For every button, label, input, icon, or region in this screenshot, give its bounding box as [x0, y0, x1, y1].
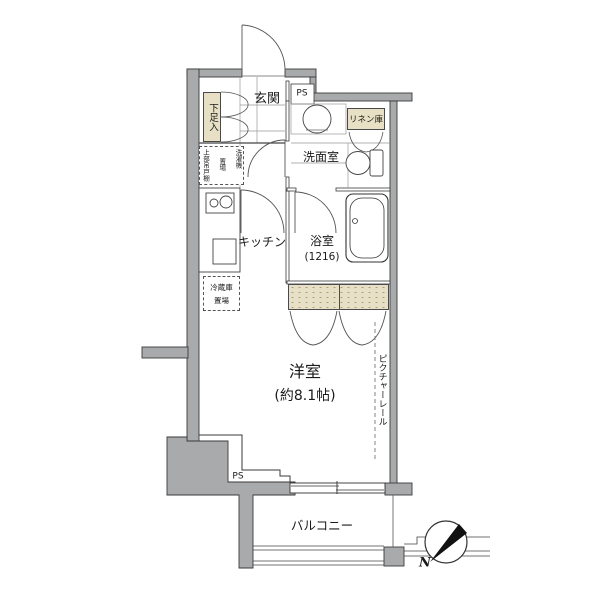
washer-space-label-2: 置場 [218, 149, 225, 182]
washer-space-label-1: 洗濯機 [235, 149, 242, 182]
washbasin [303, 105, 331, 133]
wall-left [187, 69, 199, 441]
wall-washroom-bathroom-left [287, 188, 296, 191]
floorplan: 下足入 リネン庫 上部吊戸棚 置場 洗濯機 冷蔵庫 置場 玄関 PS 洗面室 キ… [0, 0, 600, 600]
balcony-partition-post [384, 547, 404, 566]
picture-rail-label: ピクチャーレール [377, 354, 386, 426]
wall-right [390, 101, 397, 484]
toilet [346, 150, 383, 176]
shoe-cabinet-label: 下足入 [205, 103, 219, 132]
closet-folding-doors [290, 311, 386, 345]
closet-divider [339, 285, 340, 309]
room-label-balcony: バルコニー [291, 520, 353, 533]
linen-closet: リネン庫 [347, 108, 385, 130]
ps-top-label: PS [296, 90, 307, 99]
wall-hall-bathroom [286, 191, 289, 283]
living-size-label: (約8.1帖) [274, 389, 335, 403]
toilet-bowl [346, 152, 370, 175]
stove-burner-large [220, 196, 232, 208]
stove-burner-small [210, 199, 218, 207]
compass-north-label: N [419, 557, 431, 570]
wall-bottom-left-mass [167, 437, 295, 568]
toilet-tank [370, 150, 383, 176]
room-label-bathroom: 浴室 [310, 235, 334, 247]
wall-top-right [285, 69, 316, 77]
ps-bottom-label: PS [232, 473, 243, 482]
wall-washroom-bathroom-right [336, 188, 390, 191]
shoe-cabinet-doors [221, 92, 248, 142]
bathroom-door-arc [295, 192, 336, 233]
entrance-area [242, 25, 285, 76]
shoe-cabinet: 下足入 [203, 92, 221, 142]
wall-right-end-block [385, 483, 412, 495]
washroom-door-arc [248, 140, 285, 177]
linen-closet-label: リネン庫 [349, 113, 383, 125]
hall-door [241, 190, 284, 233]
washroom-door [248, 140, 285, 177]
upper-cabinet-label: 上部吊戸棚 [202, 149, 209, 182]
fridge-space-box: 冷蔵庫 置場 [203, 276, 240, 311]
wall-band-top-right [310, 93, 412, 101]
wall-hall-washroom-upper [286, 81, 289, 101]
kitchen-counter [199, 188, 240, 272]
bathroom-size-label: (1216) [305, 252, 340, 263]
room-label-washroom: 洗面室 [303, 151, 339, 163]
entrance-door-arc [242, 25, 285, 71]
living-window [290, 481, 385, 494]
room-label-living: 洋室 [289, 364, 321, 380]
fridge-label-line2: 置場 [214, 295, 229, 306]
room-label-kitchen: キッチン [238, 236, 286, 248]
wall-left-arm [142, 347, 188, 358]
hall-door-arc [241, 190, 284, 233]
fridge-label-line1: 冷蔵庫 [210, 282, 233, 293]
wall-hall-washroom [286, 101, 289, 141]
bathtub-drain [353, 219, 358, 224]
bathtub [346, 194, 388, 262]
upper-cabinet-washer-box: 上部吊戸棚 置場 洗濯機 [199, 146, 244, 185]
linen-door-arcs [349, 132, 383, 152]
closet [288, 284, 389, 310]
kitchen-sink [213, 239, 236, 264]
room-label-entrance: 玄関 [254, 93, 280, 106]
bathroom-door [295, 192, 336, 233]
compass-icon [425, 521, 467, 563]
